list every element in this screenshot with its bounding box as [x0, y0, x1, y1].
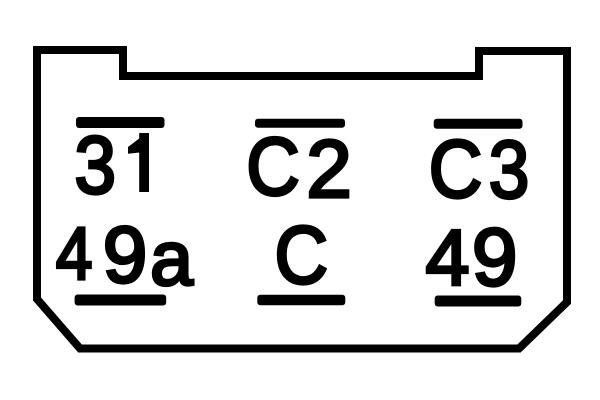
svg-text:3: 3: [489, 125, 530, 216]
svg-text:C: C: [275, 210, 329, 301]
svg-text:9: 9: [103, 210, 148, 299]
svg-text:3: 3: [74, 120, 116, 211]
svg-text:2: 2: [306, 124, 352, 215]
svg-text:9: 9: [472, 212, 518, 303]
svg-text:4: 4: [426, 213, 470, 302]
svg-text:a: a: [150, 216, 193, 302]
svg-text:C: C: [429, 124, 483, 215]
svg-text:4: 4: [56, 212, 93, 295]
svg-text:C: C: [246, 122, 300, 213]
